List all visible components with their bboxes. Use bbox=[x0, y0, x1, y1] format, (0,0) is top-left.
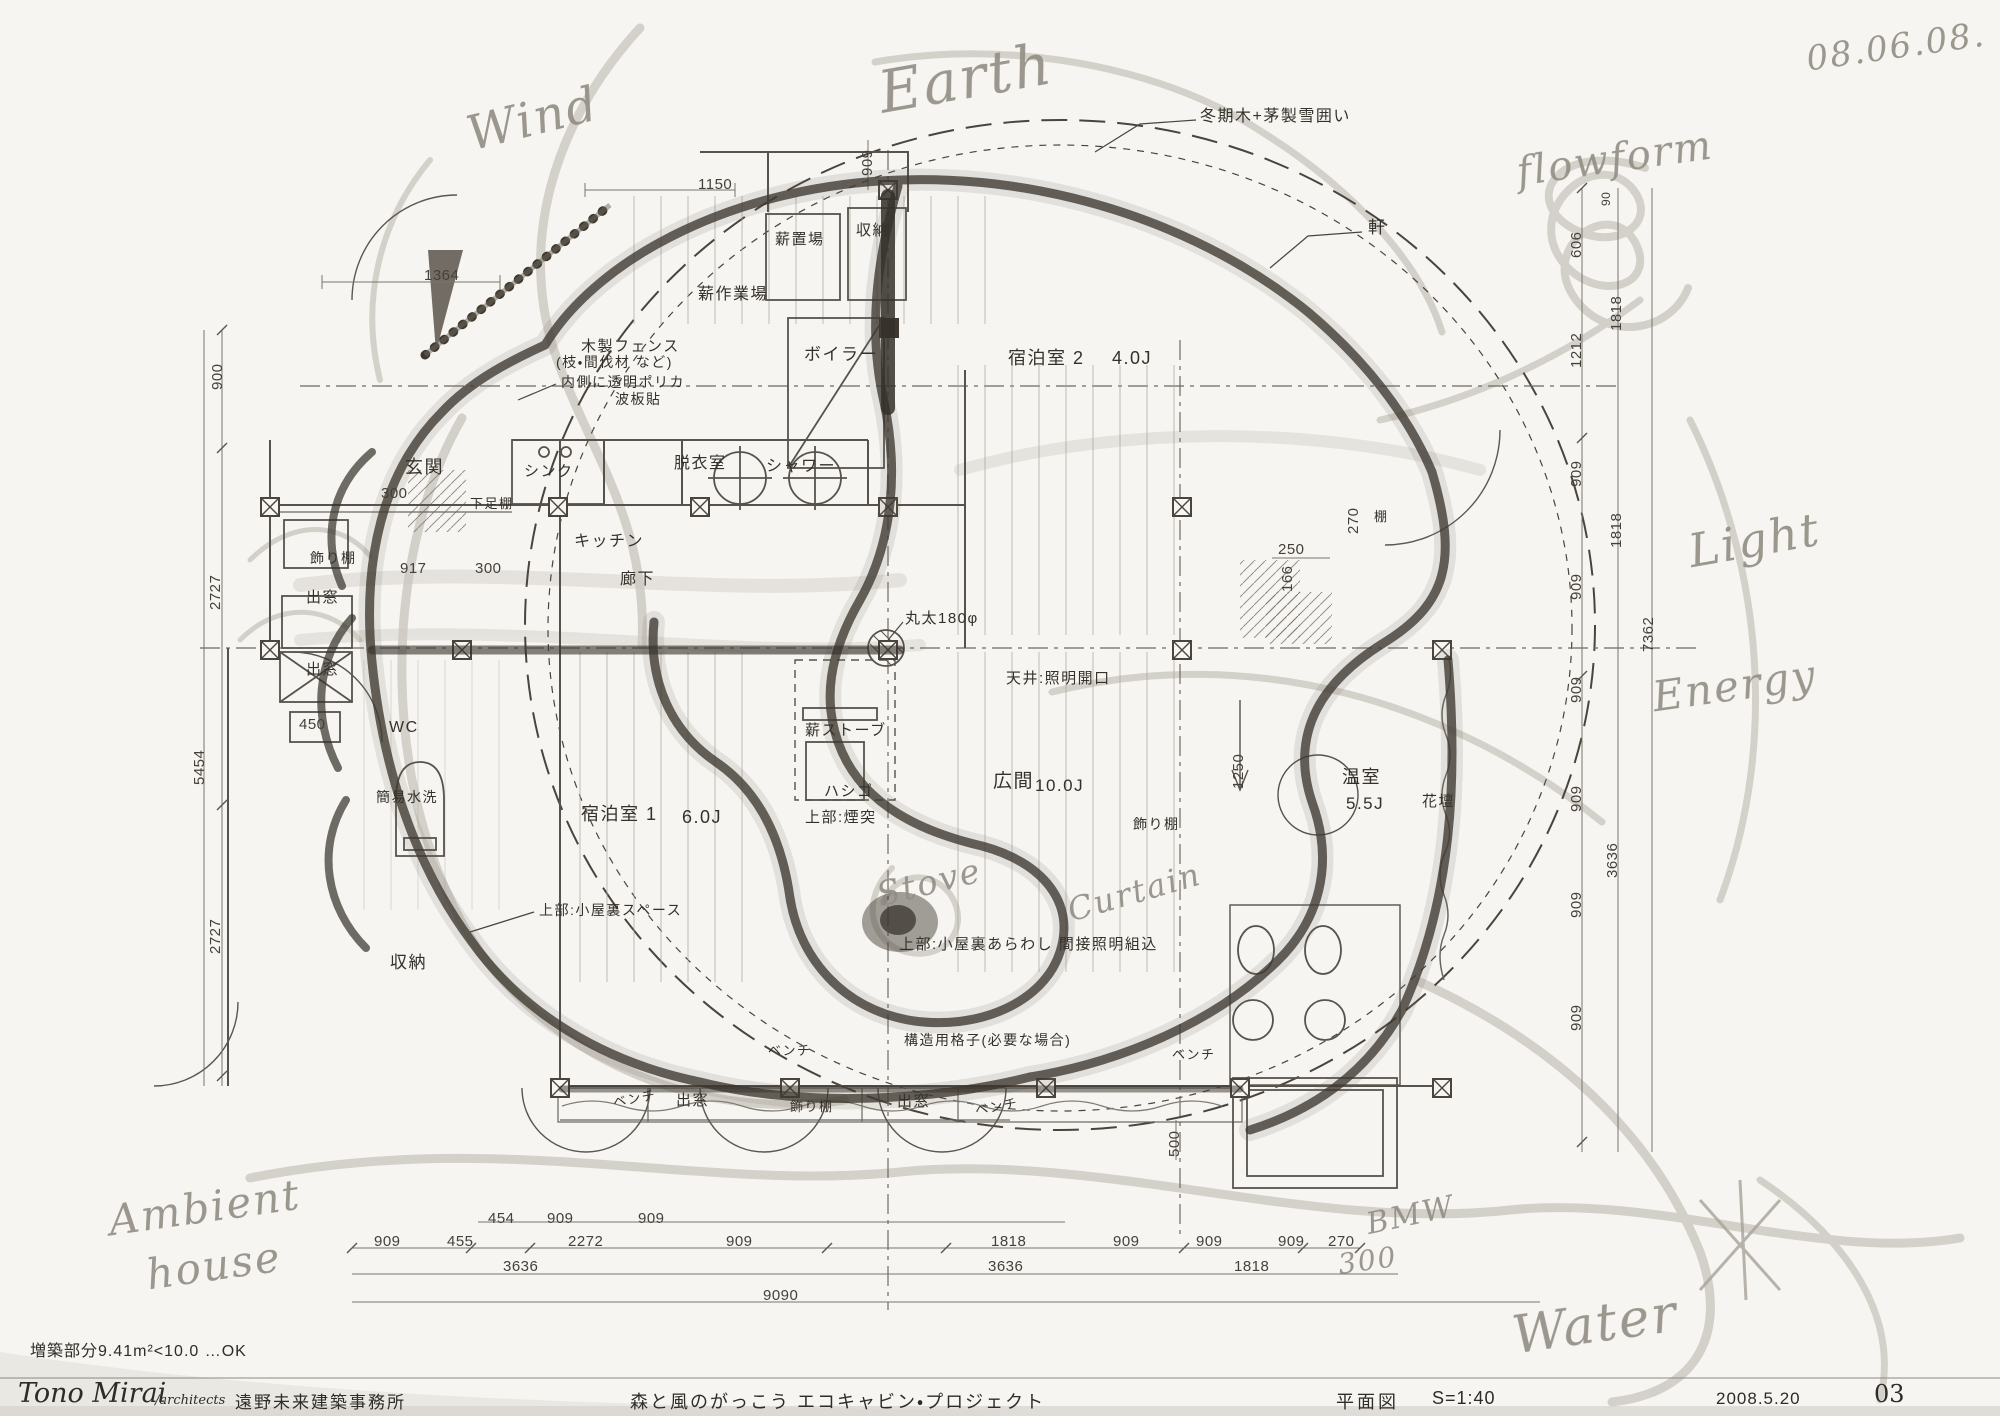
dimension-label: 300 bbox=[475, 561, 502, 577]
dimension-label-vertical: 1818 bbox=[1609, 513, 1625, 548]
dimension-label: 909 bbox=[1278, 1234, 1305, 1250]
note-lattice: 構造用格子(必要な場合) bbox=[904, 1033, 1071, 1048]
dimension-label-vertical: 1212 bbox=[1569, 333, 1585, 368]
dimension-label: 909 bbox=[1196, 1234, 1223, 1250]
dimension-label-vertical: 909 bbox=[1569, 1004, 1585, 1031]
dimension-label: 909 bbox=[726, 1234, 753, 1250]
drawing-date: 2008.5.20 bbox=[1716, 1389, 1801, 1409]
fixture-baywindow-4: 出窓 bbox=[897, 1094, 930, 1110]
fixture-baywindow-3: 出窓 bbox=[676, 1093, 709, 1109]
fixture-toilet: 簡易水洗 bbox=[376, 790, 438, 805]
dimension-label-vertical: 900 bbox=[210, 363, 226, 390]
fixture-shelf-hall: 飾り棚 bbox=[1133, 817, 1180, 832]
dimension-label: 1818 bbox=[991, 1234, 1026, 1250]
room-greenhouse-size: 5.5J bbox=[1346, 795, 1384, 813]
sheet-number: 03 bbox=[1874, 1380, 1905, 1408]
dimension-label: 1364 bbox=[424, 268, 459, 284]
dimension-label-vertical: 270 bbox=[1346, 507, 1362, 534]
architect-name: Tono Mirai bbox=[18, 1378, 166, 1409]
dimension-label: 455 bbox=[447, 1234, 474, 1250]
project-title: 森と風のがっこう エコキャビン・プロジェクト bbox=[630, 1388, 1045, 1414]
dimension-label-vertical: 909 bbox=[1569, 676, 1585, 703]
dimension-label: 250 bbox=[1278, 542, 1305, 558]
note-shoe-shelf: 下足棚 bbox=[470, 497, 514, 511]
dimension-label: 1818 bbox=[1234, 1259, 1269, 1275]
dimension-label: 3636 bbox=[503, 1259, 538, 1275]
room-hall-size: 10.0J bbox=[1035, 777, 1084, 795]
fixture-wood-stove: 薪ストーブ bbox=[805, 723, 887, 739]
note-300-hand: 300 bbox=[1336, 1242, 1399, 1279]
note-log-column: 丸太180φ bbox=[905, 611, 979, 627]
dimension-label: 9090 bbox=[763, 1288, 798, 1304]
extension-area-note: 増築部分9.41m²<10.0 …OK bbox=[30, 1337, 247, 1361]
note-ceiling-opening: 天井:照明開口 bbox=[1006, 671, 1111, 687]
room-firewood-storage: 薪置場 bbox=[775, 232, 825, 248]
drawing-scale: S=1:40 bbox=[1432, 1388, 1496, 1409]
dimension-label: 450 bbox=[299, 717, 326, 733]
room-guest2: 宿泊室 2 bbox=[1008, 349, 1085, 368]
room-shower: シャワー bbox=[766, 459, 836, 476]
drawing-type: 平面図 bbox=[1336, 1388, 1399, 1414]
note-attic-space: 上部:小屋裏スペース bbox=[539, 903, 682, 918]
dimension-label-vertical: 7362 bbox=[1641, 617, 1657, 652]
dimension-label-vertical: 909 bbox=[1569, 573, 1585, 600]
room-corridor: 廊下 bbox=[620, 572, 655, 589]
fixture-shelf-small: 棚 bbox=[1374, 510, 1389, 524]
dimension-label: 454 bbox=[488, 1211, 515, 1227]
room-guest1-size: 6.0J bbox=[682, 808, 722, 827]
room-wc: WC bbox=[389, 720, 419, 737]
dimension-label-vertical: 3636 bbox=[1605, 843, 1621, 878]
note-polycarb: 内側に透明ポリカ bbox=[561, 375, 685, 390]
dimension-label: 909 bbox=[1113, 1234, 1140, 1250]
dimension-label-vertical: 166 bbox=[1280, 565, 1296, 592]
room-boiler: ボイラー bbox=[804, 346, 878, 364]
fixture-baywindow-1: 出窓 bbox=[306, 590, 339, 606]
dimension-label: 2272 bbox=[568, 1234, 603, 1250]
note-eave: 軒 bbox=[1368, 219, 1387, 237]
dimension-label-vertical: 5454 bbox=[192, 750, 208, 785]
fixture-ladder: ハシゴ bbox=[824, 784, 874, 800]
fixture-flowerbed: 花壇 bbox=[1422, 794, 1455, 810]
fixture-shelf-left: 飾り棚 bbox=[310, 551, 357, 566]
room-guest1: 宿泊室 1 bbox=[581, 805, 658, 824]
room-entrance: 玄関 bbox=[405, 458, 444, 477]
room-kitchen: キッチン bbox=[574, 534, 644, 551]
dimension-label: 909 bbox=[374, 1234, 401, 1250]
fixture-baywindow-2: 出窓 bbox=[306, 662, 339, 678]
room-guest2-size: 4.0J bbox=[1112, 349, 1152, 368]
dimension-label-vertical: 500 bbox=[1167, 1130, 1183, 1157]
dimension-label-vertical: 909 bbox=[1569, 891, 1585, 918]
room-firewood-workspace: 薪作業場 bbox=[698, 287, 768, 304]
dimension-label-vertical: 909 bbox=[1569, 785, 1585, 812]
note-winter-cover: 冬期木+茅製雪囲い bbox=[1200, 109, 1351, 126]
fixture-sink: シンク bbox=[524, 464, 574, 480]
dimension-label-vertical: 1250 bbox=[1231, 754, 1247, 789]
dimension-label: 909 bbox=[547, 1211, 574, 1227]
note-polycarb2: 波板貼 bbox=[615, 392, 662, 407]
room-hall: 広間 bbox=[993, 772, 1034, 792]
dimension-label: 909 bbox=[638, 1211, 665, 1227]
dimension-label: 1150 bbox=[698, 177, 732, 193]
room-storage-top: 収納 bbox=[856, 223, 889, 239]
dimension-label: 917 bbox=[400, 561, 427, 577]
room-changing: 脱衣室 bbox=[674, 456, 727, 473]
dimension-label-vertical: 909 bbox=[860, 149, 876, 176]
fixture-bench-1: ベンチ bbox=[768, 1044, 812, 1058]
fixture-shelf-bottom: 飾り棚 bbox=[790, 1100, 834, 1114]
note-chimney: 上部:煙突 bbox=[805, 810, 877, 826]
dimension-label-vertical: 909 bbox=[1569, 460, 1585, 487]
architect-suffix: /architects bbox=[155, 1393, 225, 1408]
dimension-label: 3636 bbox=[988, 1259, 1023, 1275]
dimension-label-vertical: 2727 bbox=[208, 919, 224, 954]
dimension-label-vertical: 90 bbox=[1600, 192, 1613, 206]
room-storage-bottom: 収納 bbox=[390, 954, 427, 972]
office-name: 遠野未来建築事務所 bbox=[235, 1388, 406, 1413]
room-greenhouse: 温室 bbox=[1342, 768, 1381, 787]
dimension-label-vertical: 606 bbox=[1569, 231, 1585, 258]
fixture-bench-2: ベンチ bbox=[1172, 1048, 1216, 1062]
note-attic-exposed: 上部:小屋裏あらわし 間接照明組込 bbox=[899, 937, 1158, 953]
note-wood-fence2: (枝・間伐材 など) bbox=[556, 355, 673, 370]
dimension-label: 300 bbox=[381, 486, 408, 502]
note-wood-fence: 木製フェンス bbox=[581, 339, 680, 355]
floor-plan-sheet: 冬期木+茅製雪囲い軒薪置場収納薪作業場ボイラー宿泊室 24.0J木製フェンス(枝… bbox=[0, 0, 2000, 1416]
dimension-label-vertical: 2727 bbox=[208, 575, 224, 610]
dimension-label-vertical: 1818 bbox=[1609, 296, 1625, 331]
